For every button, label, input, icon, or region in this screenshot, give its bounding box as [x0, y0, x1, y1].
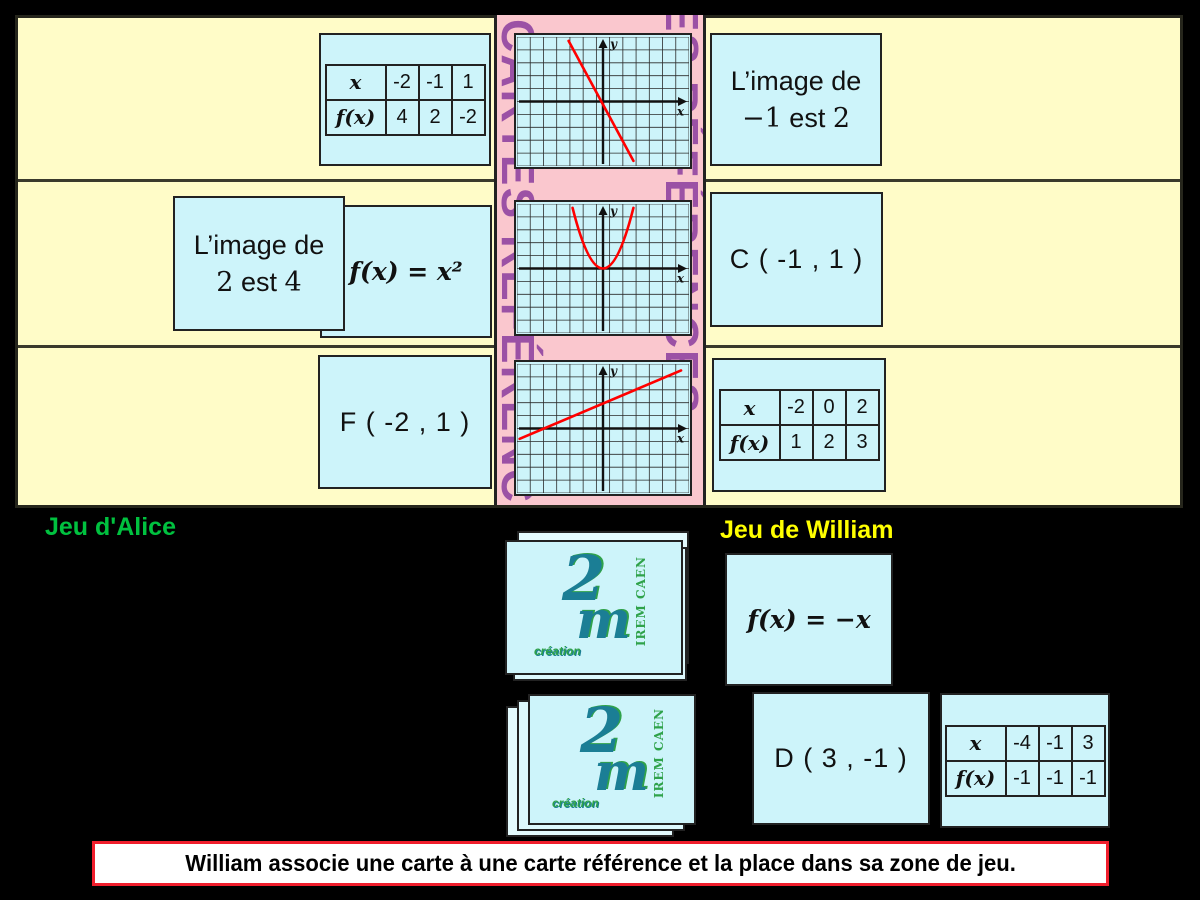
table-cell: 2 [813, 425, 846, 460]
point-text: D ( 3 , -1 ) [774, 740, 908, 777]
table-cell: 2 [419, 100, 452, 135]
value-table: x-4-13f(x)-1-1-1 [945, 725, 1106, 797]
card-point-c[interactable]: C ( -1 , 1 ) [710, 192, 883, 327]
table-row-label: f(x) [326, 100, 386, 135]
card-text-line2: −1 est 2 [742, 100, 850, 137]
card-text-line2: 2 est 4 [216, 264, 301, 301]
table-cell: 3 [1072, 726, 1105, 761]
formula-text: f(x) = −x [747, 605, 871, 634]
reference-card-graph-parabola[interactable]: xy [514, 200, 692, 336]
table-cell: -2 [780, 390, 813, 425]
card-point-d[interactable]: D ( 3 , -1 ) [752, 692, 930, 825]
card-value-table-2[interactable]: x-202f(x)123 [712, 358, 886, 492]
deck1-top-card-back[interactable]: 2 m IREM CAEN création [505, 540, 683, 675]
table-cell: 1 [780, 425, 813, 460]
table-cell: -1 [419, 65, 452, 100]
point-text: C ( -1 , 1 ) [730, 241, 864, 278]
logo-irem-caen-text: IREM CAEN [634, 556, 648, 646]
card-image-of-2[interactable]: L’image de 2 est 4 [173, 196, 345, 331]
status-message-text: William associe une carte à une carte ré… [185, 850, 1016, 877]
table-cell: 2 [846, 390, 879, 425]
table-row-label: x [720, 390, 780, 425]
svg-text:x: x [676, 271, 685, 285]
table-cell: 1 [452, 65, 485, 100]
card-value-table-1[interactable]: x-2-11f(x)42-2 [319, 33, 491, 166]
table-cell: -2 [452, 100, 485, 135]
table-cell: -2 [386, 65, 419, 100]
reference-card-graph-decreasing[interactable]: xy [514, 33, 692, 169]
card-text-line1: L’image de [194, 227, 325, 264]
table-cell: 0 [813, 390, 846, 425]
svg-text:x: x [676, 431, 685, 445]
value-table: x-2-11f(x)42-2 [325, 64, 486, 136]
svg-text:y: y [609, 204, 618, 218]
svg-text:y: y [609, 37, 618, 51]
deck2-top-card-back[interactable]: 2 m IREM CAEN création [528, 694, 696, 825]
table-cell: 4 [386, 100, 419, 135]
point-text: F ( -2 , 1 ) [340, 404, 471, 441]
logo-irem-caen-text: IREM CAEN [652, 708, 666, 798]
table-row-label: f(x) [946, 761, 1006, 796]
table-cell: -4 [1006, 726, 1039, 761]
table-cell: 3 [846, 425, 879, 460]
reference-card-graph-increasing[interactable]: xy [514, 360, 692, 496]
decreasing-line-graph: xy [517, 37, 689, 166]
card-formula-negative-x[interactable]: f(x) = −x [725, 553, 893, 686]
parabola-graph: xy [517, 204, 689, 333]
logo-creation-text: création [552, 796, 599, 810]
svg-text:y: y [609, 364, 618, 378]
table-cell: -1 [1072, 761, 1105, 796]
table-cell: -1 [1039, 761, 1072, 796]
william-zone-label: Jeu de William [720, 516, 893, 545]
table-row-label: f(x) [720, 425, 780, 460]
card-point-f[interactable]: F ( -2 , 1 ) [318, 355, 492, 489]
logo-creation-text: création [534, 644, 581, 658]
card-value-table-3[interactable]: x-4-13f(x)-1-1-1 [940, 693, 1110, 828]
irem-2m-logo: 2 m IREM CAEN création [546, 556, 642, 660]
logo-letter: m [594, 742, 649, 803]
table-row-label: x [326, 65, 386, 100]
logo-letter: m [576, 590, 631, 651]
increasing-line-graph: xy [517, 364, 689, 493]
formula-text: f(x) = x² [349, 257, 463, 286]
card-image-of-minus1[interactable]: L’image de −1 est 2 [710, 33, 882, 166]
card-formula-x-squared[interactable]: f(x) = x² [320, 205, 492, 338]
status-message-bar: William associe une carte à une carte ré… [92, 841, 1109, 886]
table-cell: -1 [1006, 761, 1039, 796]
alice-zone-label: Jeu d'Alice [45, 513, 176, 542]
table-cell: -1 [1039, 726, 1072, 761]
game-stage: CARTES RÉFÉRENCES CARTES RÉFÉRENCES xy x… [0, 0, 1200, 900]
value-table: x-202f(x)123 [719, 389, 880, 461]
svg-text:x: x [676, 104, 685, 118]
reference-column: CARTES RÉFÉRENCES CARTES RÉFÉRENCES xy x… [494, 15, 706, 505]
card-text-line1: L’image de [731, 63, 862, 100]
irem-2m-logo: 2 m IREM CAEN création [564, 708, 660, 812]
table-row-label: x [946, 726, 1006, 761]
